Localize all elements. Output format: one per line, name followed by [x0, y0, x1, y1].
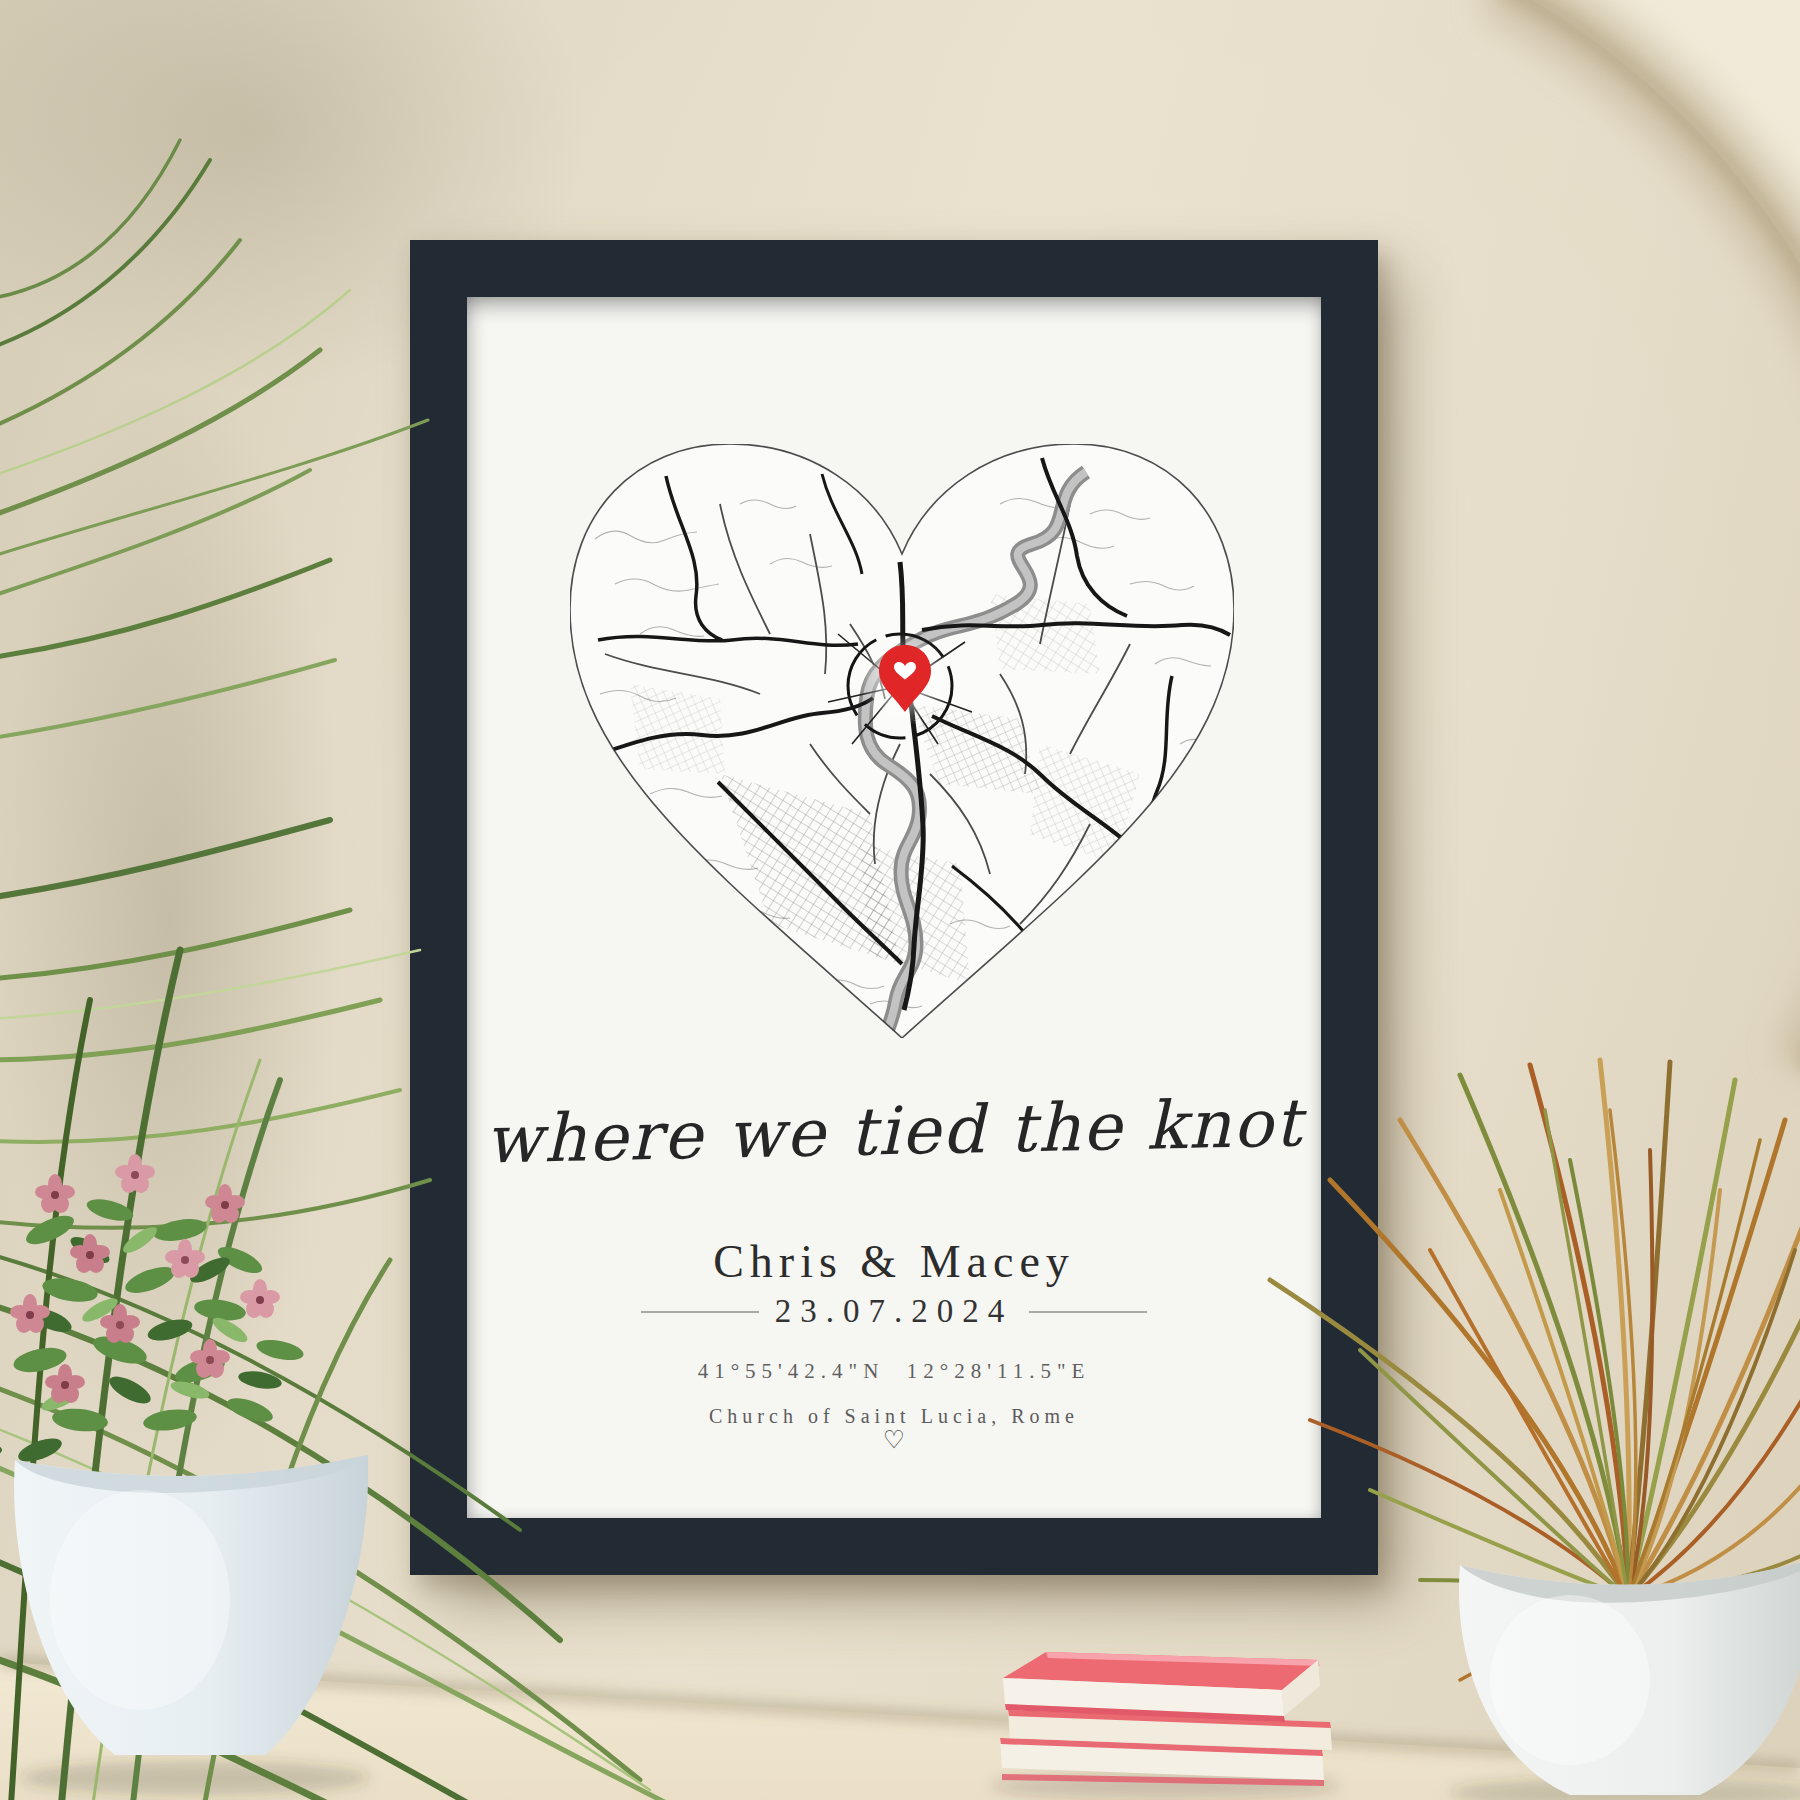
product-photo-scene: where we tied the knot Chris & Macey 23.…: [0, 0, 1800, 1800]
books-stack: [960, 1640, 1380, 1800]
book: [1003, 1652, 1320, 1722]
flower-plant-and-pot: [0, 1120, 500, 1800]
flower-leaves: [0, 1195, 305, 1466]
left-pot: [14, 1455, 368, 1755]
right-pot: [1459, 1560, 1800, 1795]
